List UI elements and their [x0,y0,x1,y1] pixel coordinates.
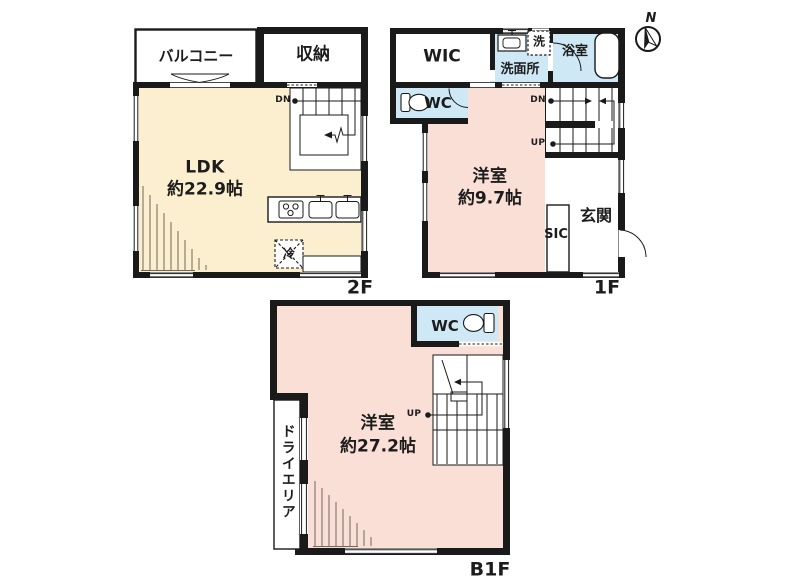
bathtub-icon [595,33,619,78]
label-up-b1f: UP [407,410,422,420]
label-dry-area: ドライエリア [279,424,294,520]
compass-icon [634,24,664,54]
counter-niche [303,256,361,272]
label-wc-1f: WC [424,95,452,112]
label-wc-b1f: WC [431,318,459,335]
label-washroom: 洗面所 [500,63,539,77]
label-ldk: LDK [185,159,225,178]
label-laundry: 洗 [533,35,545,48]
label-room-b1f-size: 約27.2帖 [340,438,416,457]
compass [634,24,664,58]
floorplan-canvas: バルコニー 収納 LDK 約22.9帖 DN 冷 2F WIC 洗面所 洗 浴室… [0,0,800,587]
label-wic: WIC [423,48,461,67]
label-bath: 浴室 [562,45,588,59]
label-dn-1f: DN [530,96,546,106]
label-fridge: 冷 [283,247,295,260]
label-balcony: バルコニー [159,48,234,65]
stairs-2f-icon [290,88,361,170]
label-room-b1f: 洋室 [361,415,396,434]
label-sic: SIC [544,228,568,242]
label-room-1f: 洋室 [473,168,508,187]
stairs-b1f-icon [425,355,503,465]
label-entrance: 玄関 [580,207,612,225]
kitchen-counter [268,196,361,223]
label-room-1f-size: 約9.7帖 [458,190,522,209]
label-dn-2f: DN [275,96,291,106]
label-storage: 収納 [296,46,330,65]
label-ldk-size: 約22.9帖 [167,181,243,200]
label-up-1f: UP [531,139,546,149]
label-floor-1f: 1F [594,278,620,299]
label-floor-b1f: B1F [470,560,511,581]
label-floor-2f: 2F [347,278,373,299]
stairs-floor [545,88,619,152]
toilet-icon-b1f [464,314,495,333]
